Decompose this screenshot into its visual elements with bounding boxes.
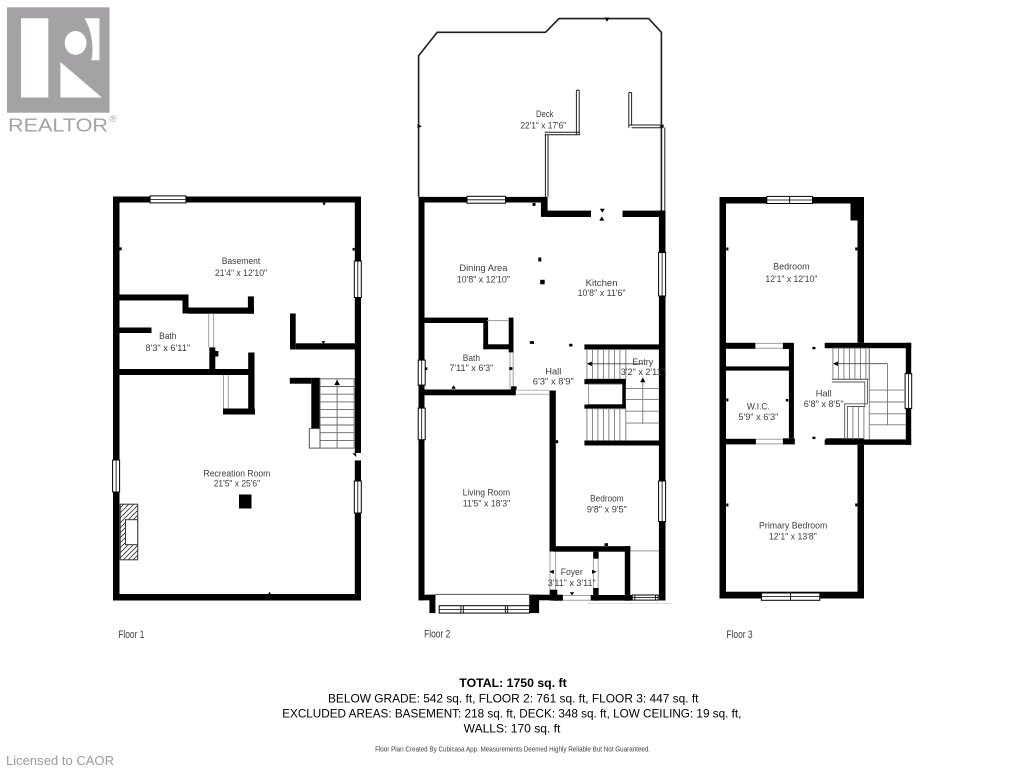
svg-text:3'2" x 2'11": 3'2" x 2'11" <box>621 367 665 377</box>
svg-text:21'4" x 12'10": 21'4" x 12'10" <box>215 268 267 278</box>
svg-text:Bedroom: Bedroom <box>590 494 624 505</box>
svg-text:12'1" x 13'8": 12'1" x 13'8" <box>769 532 817 542</box>
svg-text:11'5" x 18'3": 11'5" x 18'3" <box>463 498 511 508</box>
svg-text:10'8" x 11'6": 10'8" x 11'6" <box>578 288 626 298</box>
svg-text:6'3" x 8'9": 6'3" x 8'9" <box>533 377 574 387</box>
svg-text:BELOW GRADE: 542 sq. ft, FLOOR: BELOW GRADE: 542 sq. ft, FLOOR 2: 761 sq… <box>328 692 699 706</box>
svg-text:3'11" x 3'11": 3'11" x 3'11" <box>548 578 596 588</box>
svg-text:Kitchen: Kitchen <box>586 278 618 289</box>
svg-text:Foyer: Foyer <box>561 567 584 578</box>
svg-text:6'8" x 8'5": 6'8" x 8'5" <box>804 399 844 409</box>
svg-text:Floor 3: Floor 3 <box>726 629 752 641</box>
svg-text:Living Room: Living Room <box>463 488 511 499</box>
svg-text:Bath: Bath <box>159 331 176 342</box>
svg-text:9'8" x 9'5": 9'8" x 9'5" <box>587 504 627 514</box>
svg-text:8'3" x 6'11": 8'3" x 6'11" <box>145 343 190 353</box>
svg-text:TOTAL: 1750 sq. ft: TOTAL: 1750 sq. ft <box>459 676 566 690</box>
svg-text:Dining Area: Dining Area <box>459 263 508 274</box>
svg-text:12'1" x 12'10": 12'1" x 12'10" <box>765 274 817 284</box>
svg-text:22'1" x 17'6": 22'1" x 17'6" <box>520 120 566 130</box>
svg-text:Floor 1: Floor 1 <box>118 629 144 641</box>
svg-text:REALTOR: REALTOR <box>8 116 108 136</box>
svg-text:7'11" x 6'3": 7'11" x 6'3" <box>449 363 493 373</box>
svg-text:5'9" x 6'3": 5'9" x 6'3" <box>738 412 778 422</box>
svg-text:Basement: Basement <box>222 256 261 267</box>
svg-text:Licensed to CAOR: Licensed to CAOR <box>6 753 114 768</box>
svg-text:Bedroom: Bedroom <box>773 262 810 273</box>
svg-text:Floor Plan Created By Cubicasa: Floor Plan Created By Cubicasa App. Meas… <box>375 745 650 754</box>
svg-text:Floor 2: Floor 2 <box>424 629 450 641</box>
svg-text:W.I.C.: W.I.C. <box>747 402 770 413</box>
svg-text:Hall: Hall <box>816 388 832 399</box>
svg-text:Primary Bedroom: Primary Bedroom <box>759 521 827 532</box>
svg-text:10'8" x 12'10": 10'8" x 12'10" <box>457 274 510 284</box>
svg-text:WALLS: 170 sq. ft: WALLS: 170 sq. ft <box>464 722 561 736</box>
svg-text:®: ® <box>110 114 117 125</box>
svg-text:21'5" x 25'6": 21'5" x 25'6" <box>214 479 260 489</box>
svg-text:Deck: Deck <box>536 109 554 120</box>
svg-text:EXCLUDED AREAS: BASEMENT: 218: EXCLUDED AREAS: BASEMENT: 218 sq. ft, DE… <box>282 707 741 721</box>
